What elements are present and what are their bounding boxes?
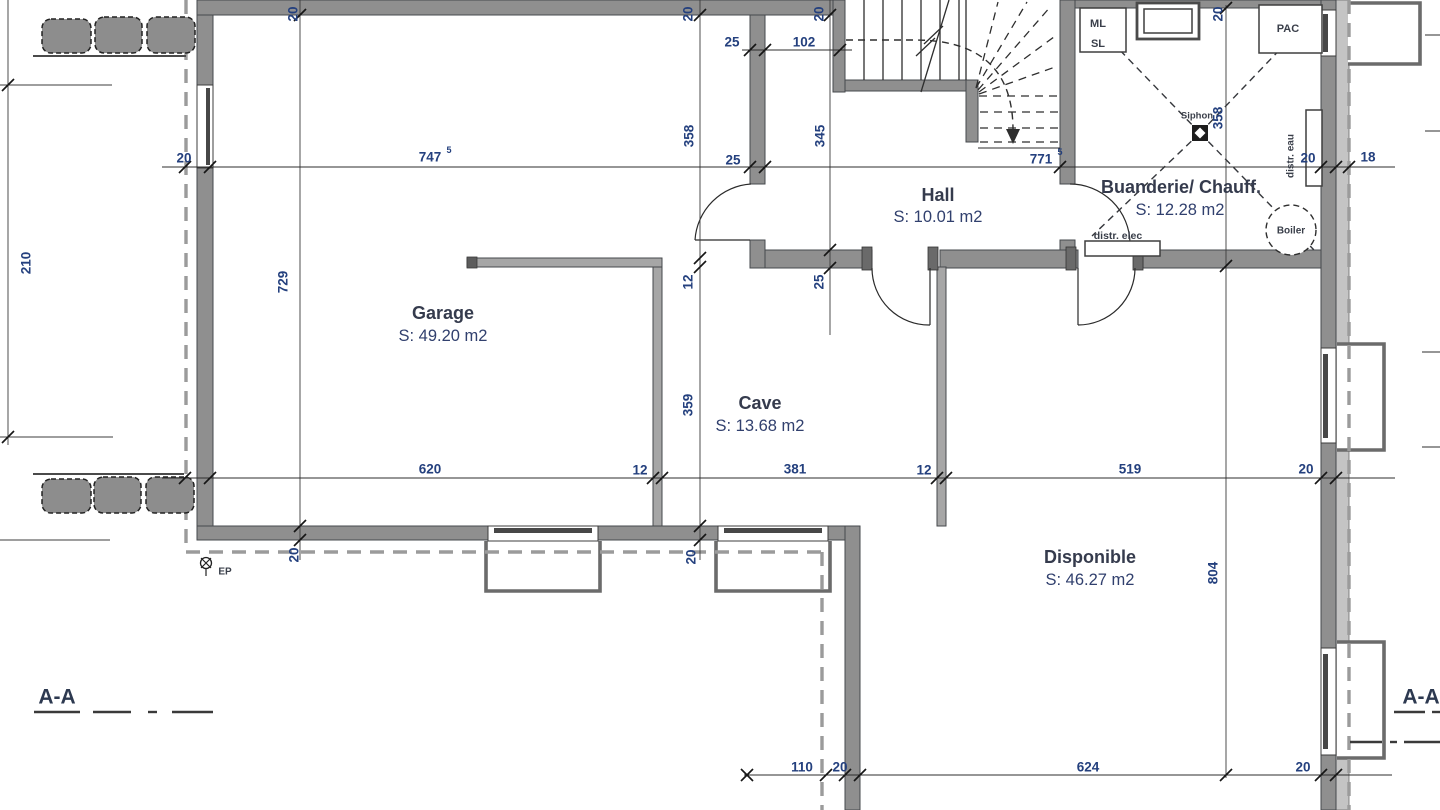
wall-garage-hall — [750, 15, 765, 184]
wall-right — [1321, 56, 1336, 348]
dim-superscript: 5 — [446, 145, 451, 155]
dim-label: 20 — [832, 760, 847, 775]
stair-break-line — [921, 0, 949, 92]
wall-hall-bottom — [940, 250, 1078, 268]
wall-cave-left — [653, 267, 662, 526]
dim-label: 12 — [916, 463, 931, 478]
wall-bottom — [197, 526, 488, 540]
dim-label: 519 — [1119, 462, 1142, 477]
window-sash — [724, 528, 822, 533]
room-name-hall: Hall — [921, 185, 954, 205]
label-water-distribution: distr. eau — [1286, 134, 1297, 178]
dim-label: 20 — [681, 6, 696, 21]
wall-right — [1321, 443, 1336, 648]
dim-label: 358 — [682, 124, 697, 147]
stair-treads — [864, 0, 966, 80]
dim-label: 804 — [1206, 561, 1221, 584]
dim-label: 110 — [791, 760, 813, 775]
wall-right — [1321, 0, 1336, 10]
label-heat-pump: PAC — [1277, 23, 1299, 35]
label-siphon: Siphon — [1181, 111, 1213, 122]
dim-label: 20 — [1211, 6, 1226, 21]
dim-label: 359 — [681, 394, 696, 417]
window-sash — [206, 88, 210, 165]
door-hall-cave — [872, 268, 930, 325]
stair-break-marks — [916, 26, 943, 56]
room-name-buanderie: Buanderie/ Chauff. — [1101, 177, 1261, 197]
edge-reference-lines — [1422, 35, 1440, 447]
electric-board — [1085, 241, 1160, 256]
car-icon — [94, 477, 141, 513]
car-icon — [42, 479, 91, 513]
dim-label: 20 — [684, 549, 699, 564]
wall-right — [1321, 755, 1336, 810]
dim-label: 20 — [1295, 760, 1310, 775]
label-electric-distribution: distr. elec — [1094, 230, 1143, 242]
window-well-right-mid — [1337, 344, 1384, 450]
dim-superscript: 5 — [1057, 147, 1062, 157]
ep-drain-icon — [201, 558, 212, 577]
door-jamb — [1066, 247, 1076, 270]
section-marks: A-A A-A — [34, 686, 1440, 743]
label-washing-machine: ML — [1090, 18, 1106, 30]
window-wells — [486, 3, 1420, 758]
window-sash — [1323, 654, 1328, 749]
door-hall-disponible — [1078, 268, 1135, 325]
water-distribution-cabinet — [1306, 110, 1322, 186]
dim-label: 20 — [1300, 151, 1315, 166]
dim-label: 20 — [287, 547, 302, 562]
window-sash — [1323, 354, 1328, 438]
label-dryer: SL — [1091, 38, 1105, 50]
label-rainwater-drain: EP — [218, 567, 232, 578]
wall-left-upper — [197, 15, 213, 85]
wall-stub — [750, 240, 765, 268]
floor-plan: 20 20 20 20 25 102 358 345 20 747 5 25 7… — [0, 0, 1440, 810]
dimension-texts: 20 20 20 20 25 102 358 345 20 747 5 25 7… — [19, 6, 1376, 774]
dim-label: 20 — [812, 6, 827, 21]
wall-stair-stringer-h — [845, 80, 968, 91]
window-well-bottom-1 — [486, 541, 600, 591]
windows — [197, 10, 1336, 755]
label-boiler: Boiler — [1277, 226, 1305, 237]
equipment-box-inner — [1144, 9, 1192, 33]
dim-label: 729 — [276, 271, 291, 294]
wall-end-cap — [467, 257, 477, 268]
window-well-top-right — [1348, 3, 1420, 64]
dim-label: 620 — [419, 462, 442, 477]
dim-label: 18 — [1360, 150, 1376, 165]
dim-label: 12 — [681, 274, 696, 289]
wall-cave-right — [937, 267, 946, 526]
dim-label: 624 — [1077, 760, 1100, 775]
window-sash — [494, 528, 592, 533]
dim-label: 25 — [812, 274, 827, 290]
room-name-cave: Cave — [738, 393, 781, 413]
window-well-bottom-2 — [716, 541, 830, 591]
dim-label: 102 — [793, 35, 816, 50]
dim-label: 381 — [784, 462, 807, 477]
room-area-buanderie: S: 12.28 m2 — [1136, 201, 1225, 219]
dim-label: 771 — [1030, 152, 1053, 167]
extension-horizontals — [0, 85, 113, 540]
dim-label: 20 — [286, 6, 301, 21]
extension-verticals — [8, 0, 1226, 778]
room-area-cave: S: 13.68 m2 — [716, 417, 805, 435]
staircase — [846, 0, 1060, 148]
dim-label: 747 — [419, 150, 442, 165]
room-area-garage: S: 49.20 m2 — [399, 327, 488, 345]
room-name-disponible: Disponible — [1044, 547, 1136, 567]
dim-label: 25 — [725, 153, 741, 168]
window-well-right-bottom — [1337, 642, 1384, 758]
window-left-wall — [197, 85, 213, 168]
dim-label: 20 — [1298, 462, 1313, 477]
parked-cars — [33, 17, 195, 513]
car-icon — [42, 19, 91, 53]
dim-label: 345 — [813, 124, 828, 147]
room-area-hall: S: 10.01 m2 — [894, 208, 983, 226]
room-name-garage: Garage — [412, 303, 474, 323]
section-label-right: A-A — [1402, 686, 1439, 709]
section-label-left: A-A — [38, 686, 75, 709]
window-sash — [1323, 14, 1328, 52]
stair-winder-treads — [976, 2, 1058, 142]
dim-label: 25 — [724, 35, 740, 50]
wall-hall-bottom — [765, 250, 872, 268]
car-icon — [147, 17, 195, 53]
dim-label: 12 — [632, 463, 647, 478]
door-jamb — [928, 247, 938, 270]
door-garage-hall — [695, 184, 751, 240]
car-icon — [95, 17, 142, 53]
door-jamb — [862, 247, 872, 270]
dim-label: 20 — [176, 151, 191, 166]
room-area-disponible: S: 46.27 m2 — [1046, 571, 1135, 589]
wall-cave-top — [467, 258, 662, 267]
dim-label: 210 — [19, 252, 34, 275]
car-icon — [146, 477, 194, 513]
wall-stair-stringer-v — [966, 80, 978, 142]
